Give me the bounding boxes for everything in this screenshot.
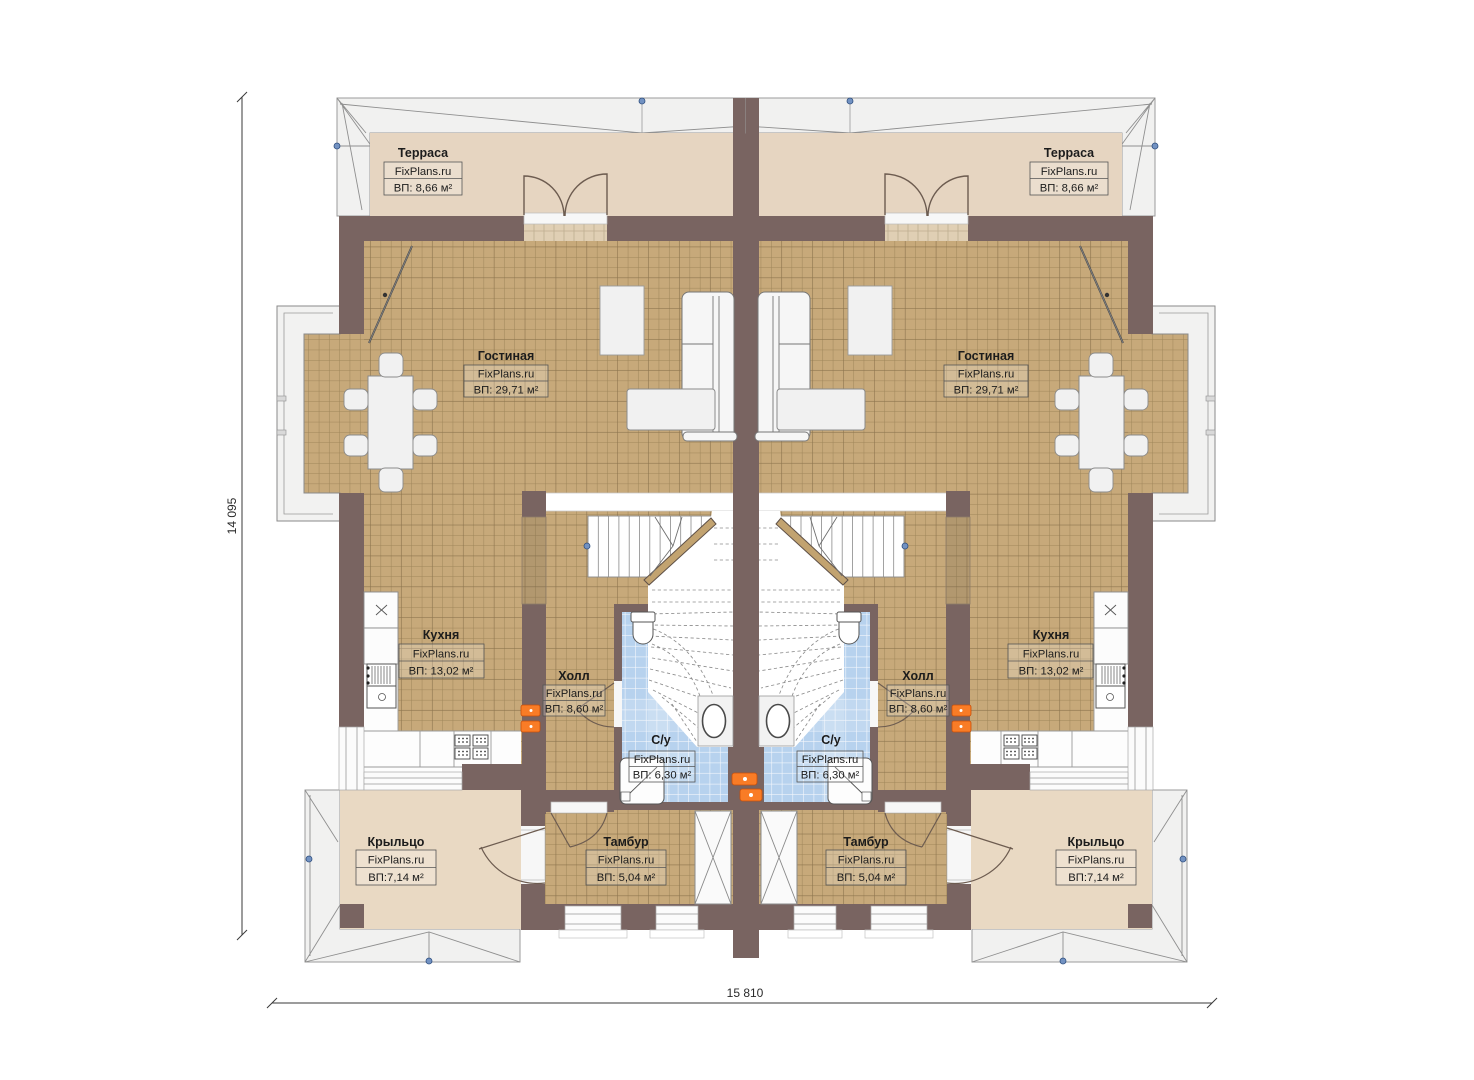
svg-text:FixPlans.ru: FixPlans.ru — [1068, 855, 1125, 867]
svg-text:ВП: 6,30 м²: ВП: 6,30 м² — [633, 770, 692, 782]
svg-text:ВП: 8,60 м²: ВП: 8,60 м² — [889, 704, 948, 716]
svg-text:Кухня: Кухня — [1033, 628, 1070, 642]
svg-text:ВП: 5,04 м²: ВП: 5,04 м² — [597, 872, 656, 884]
svg-text:FixPlans.ru: FixPlans.ru — [395, 166, 452, 178]
svg-text:Крыльцо: Крыльцо — [368, 835, 425, 849]
svg-text:FixPlans.ru: FixPlans.ru — [838, 855, 895, 867]
svg-text:15 810: 15 810 — [727, 986, 764, 1000]
svg-text:Холл: Холл — [902, 669, 933, 683]
svg-text:ВП: 8,60 м²: ВП: 8,60 м² — [545, 704, 604, 716]
svg-text:FixPlans.ru: FixPlans.ru — [958, 369, 1015, 381]
svg-text:Терраса: Терраса — [398, 146, 449, 160]
svg-text:ВП:7,14 м²: ВП:7,14 м² — [1068, 872, 1124, 884]
svg-text:FixPlans.ru: FixPlans.ru — [413, 649, 470, 661]
svg-text:FixPlans.ru: FixPlans.ru — [634, 754, 691, 766]
svg-text:ВП:7,14 м²: ВП:7,14 м² — [368, 872, 424, 884]
svg-text:14 095: 14 095 — [225, 497, 239, 534]
svg-text:Тамбур: Тамбур — [603, 835, 649, 849]
svg-text:ВП: 29,71 м²: ВП: 29,71 м² — [474, 385, 539, 397]
svg-text:ВП: 13,02 м²: ВП: 13,02 м² — [1019, 666, 1084, 678]
svg-text:ВП: 5,04 м²: ВП: 5,04 м² — [837, 872, 896, 884]
svg-text:ВП: 6,30 м²: ВП: 6,30 м² — [801, 770, 860, 782]
svg-text:FixPlans.ru: FixPlans.ru — [890, 688, 947, 700]
svg-text:ВП: 29,71 м²: ВП: 29,71 м² — [954, 385, 1019, 397]
svg-text:Гостиная: Гостиная — [958, 349, 1015, 363]
svg-text:Тамбур: Тамбур — [843, 835, 889, 849]
svg-text:ВП: 13,02 м²: ВП: 13,02 м² — [409, 666, 474, 678]
svg-text:FixPlans.ru: FixPlans.ru — [802, 754, 859, 766]
svg-text:FixPlans.ru: FixPlans.ru — [546, 688, 603, 700]
svg-text:FixPlans.ru: FixPlans.ru — [1023, 649, 1080, 661]
svg-text:FixPlans.ru: FixPlans.ru — [368, 855, 425, 867]
svg-text:FixPlans.ru: FixPlans.ru — [478, 369, 535, 381]
svg-text:Крыльцо: Крыльцо — [1068, 835, 1125, 849]
svg-text:Холл: Холл — [558, 669, 589, 683]
svg-text:FixPlans.ru: FixPlans.ru — [598, 855, 655, 867]
svg-text:Кухня: Кухня — [423, 628, 460, 642]
svg-text:С/у: С/у — [651, 733, 671, 747]
svg-text:Гостиная: Гостиная — [478, 349, 535, 363]
svg-text:ВП: 8,66 м²: ВП: 8,66 м² — [394, 183, 453, 195]
svg-text:ВП: 8,66 м²: ВП: 8,66 м² — [1040, 183, 1099, 195]
svg-text:FixPlans.ru: FixPlans.ru — [1041, 166, 1098, 178]
svg-text:Терраса: Терраса — [1044, 146, 1095, 160]
svg-text:С/у: С/у — [821, 733, 841, 747]
